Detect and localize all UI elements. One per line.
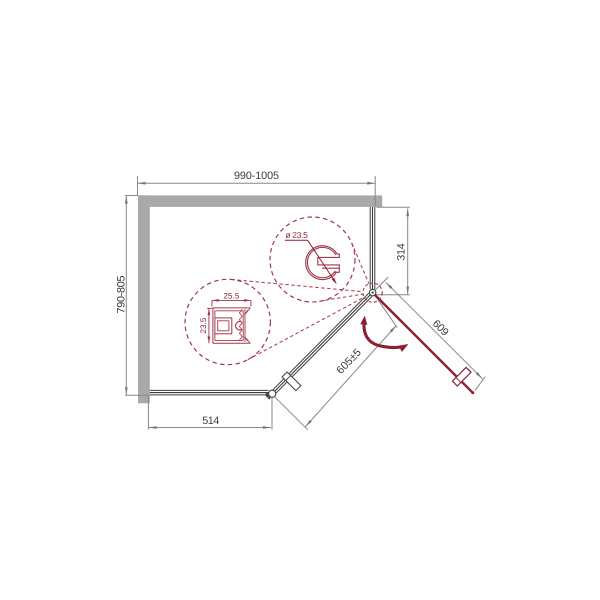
svg-text:314: 314 [396,243,408,261]
svg-text:23.5: 23.5 [199,317,208,333]
svg-text:790-805: 790-805 [116,276,128,314]
svg-text:25.5: 25.5 [224,291,240,300]
svg-text:990-1005: 990-1005 [234,170,279,182]
svg-text:ø 23.5: ø 23.5 [285,230,308,240]
svg-text:514: 514 [202,415,219,427]
